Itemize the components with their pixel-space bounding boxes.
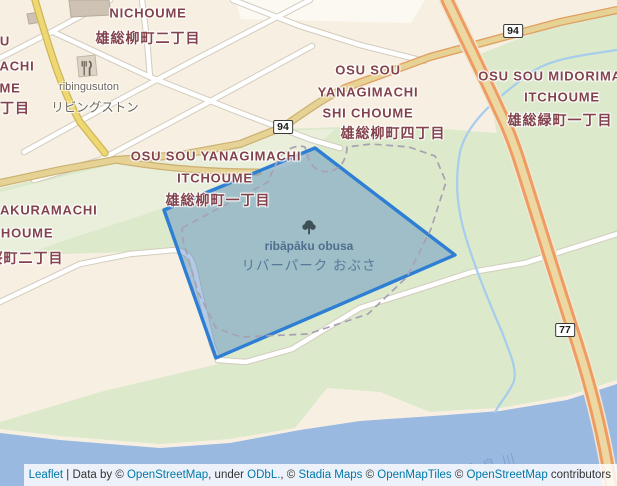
odbl-link[interactable]: ODbL. <box>247 469 280 481</box>
attribution-bar: Leaflet | Data by © OpenStreetMap, under… <box>24 464 617 486</box>
attribution-text: © <box>452 469 467 481</box>
openstreetmap-link[interactable]: OpenStreetMap <box>127 469 208 481</box>
attribution-text: | Data by © <box>63 469 127 481</box>
attribution-text: © <box>362 469 377 481</box>
route-shield-94-west: 94 <box>273 120 293 134</box>
route-shield-94-east: 94 <box>503 24 523 38</box>
map-canvas[interactable]: NICHOUME雄総柳町二丁目UACHIME丁目ribingusutonリビング… <box>0 0 617 486</box>
route-shield-77: 77 <box>555 323 575 337</box>
leaflet-link[interactable]: Leaflet <box>29 469 64 481</box>
attribution-text: , under <box>208 469 247 481</box>
attribution-text: , © <box>280 469 298 481</box>
openmaptiles-link[interactable]: OpenMapTiles <box>377 469 451 481</box>
attribution-text: contributors <box>548 469 611 481</box>
stadia-maps-link[interactable]: Stadia Maps <box>298 469 362 481</box>
openstreetmap-link-2[interactable]: OpenStreetMap <box>467 469 548 481</box>
map-tiles-layer <box>0 0 617 486</box>
